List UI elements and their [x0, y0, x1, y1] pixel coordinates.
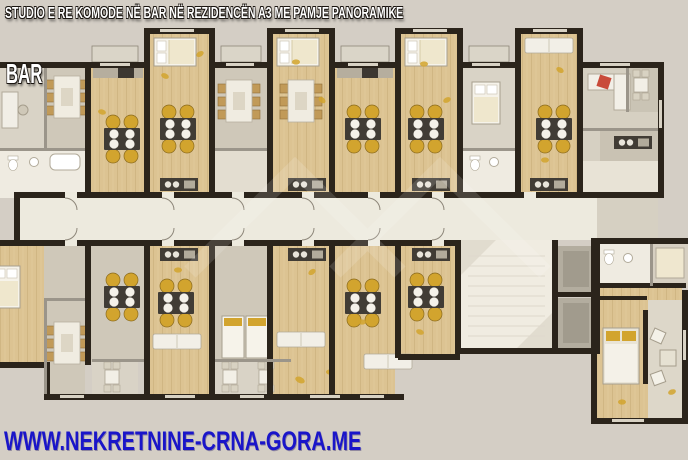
- bed: [656, 248, 684, 278]
- kitchen-counter: [160, 178, 198, 191]
- kitchen-counter: [614, 136, 652, 149]
- bed: [0, 266, 20, 308]
- sofa: [277, 332, 325, 347]
- kitchen-counter: [412, 248, 450, 261]
- dining-table-white: [46, 322, 88, 364]
- kitchen-counter: [530, 178, 568, 191]
- dining-table-white: [280, 80, 322, 122]
- bed: [472, 82, 500, 124]
- floor-plan-image: [0, 0, 688, 460]
- kitchen-counter: [288, 248, 326, 261]
- sofa: [525, 38, 573, 53]
- toilet-icon: [470, 156, 480, 171]
- bed: [154, 38, 196, 66]
- website-watermark: WWW.NEKRETNINE-CRNA-GORA.ME: [4, 426, 361, 457]
- sofa: [153, 334, 201, 349]
- sink-icon: [624, 254, 633, 263]
- dining-table-white: [218, 80, 260, 122]
- sink-icon: [30, 158, 39, 167]
- toilet-icon: [8, 156, 18, 171]
- sink-icon: [490, 158, 499, 167]
- master-bed: [603, 328, 639, 384]
- dining-table-white: [46, 76, 88, 118]
- toilet-icon: [604, 250, 614, 265]
- location-label: BAR: [6, 58, 42, 90]
- screenshot-root: STUDIO E RE KOMODE NË BAR NË REZIDENCËN …: [0, 0, 688, 460]
- bathtub-icon: [50, 154, 80, 170]
- listing-title: STUDIO E RE KOMODE NË BAR NË REZIDENCËN …: [5, 5, 403, 23]
